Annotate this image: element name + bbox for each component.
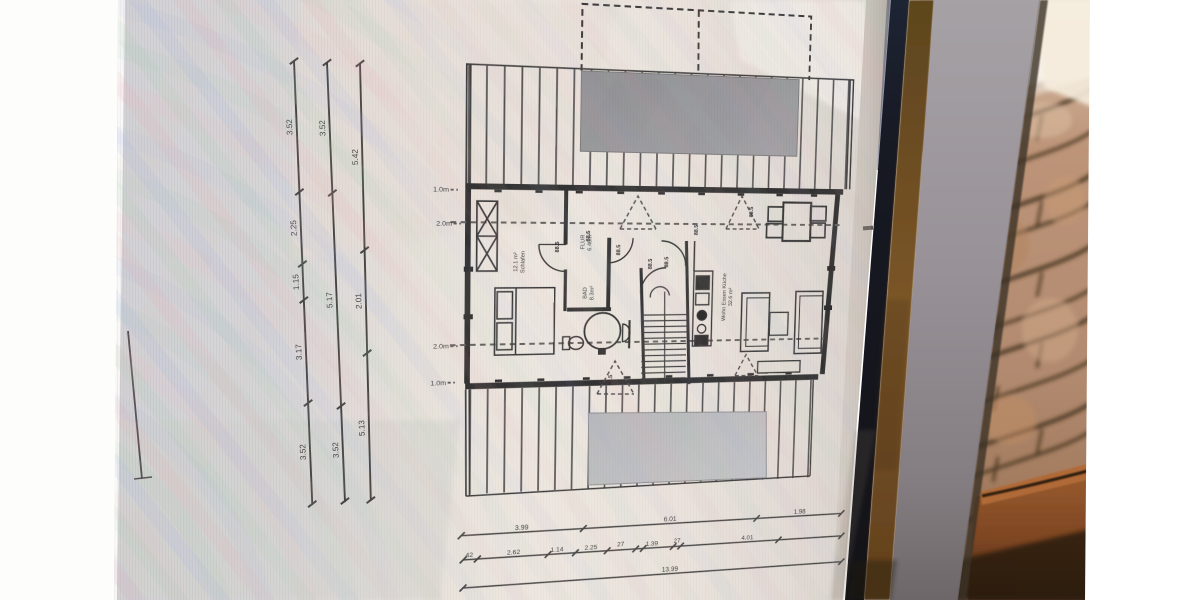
svg-text:3.99: 3.99 <box>515 523 529 532</box>
svg-text:1.0m: 1.0m <box>433 185 449 194</box>
svg-text:88.5: 88.5 <box>749 206 755 217</box>
svg-text:1.0m: 1.0m <box>430 379 446 388</box>
svg-text:2.0m: 2.0m <box>433 342 449 350</box>
svg-text:2.0m: 2.0m <box>436 219 452 227</box>
svg-text:6.01: 6.01 <box>664 515 677 523</box>
svg-text:88.5: 88.5 <box>648 258 654 269</box>
svg-text:27: 27 <box>617 540 624 548</box>
svg-text:5.17: 5.17 <box>325 292 335 309</box>
svg-text:1.15: 1.15 <box>291 274 301 291</box>
svg-text:88.5: 88.5 <box>608 374 614 385</box>
svg-text:32.6 m²: 32.6 m² <box>728 288 734 307</box>
svg-text:88.5: 88.5 <box>696 277 702 288</box>
svg-text:3.52: 3.52 <box>285 119 295 136</box>
svg-text:5.42: 5.42 <box>351 149 360 166</box>
svg-text:3.17: 3.17 <box>294 344 304 361</box>
svg-text:2.25: 2.25 <box>585 543 598 551</box>
svg-text:88.5: 88.5 <box>616 244 622 255</box>
svg-text:1.14: 1.14 <box>550 545 563 554</box>
svg-text:13.99: 13.99 <box>662 565 678 574</box>
svg-text:27: 27 <box>673 537 680 545</box>
svg-text:88.5: 88.5 <box>554 241 560 252</box>
svg-text:4.01: 4.01 <box>741 533 753 541</box>
svg-text:88.5: 88.5 <box>465 346 472 358</box>
svg-text:BAD: BAD <box>582 287 588 299</box>
svg-text:12.1 m²: 12.1 m² <box>513 252 520 271</box>
svg-text:3.52: 3.52 <box>298 444 308 461</box>
svg-text:Schlafen: Schlafen <box>520 250 527 273</box>
svg-text:88.5: 88.5 <box>694 224 700 235</box>
svg-text:88.5: 88.5 <box>664 256 670 267</box>
svg-text:1.39: 1.39 <box>646 539 659 547</box>
svg-text:3.52: 3.52 <box>318 120 328 137</box>
svg-text:5.13: 5.13 <box>357 420 366 437</box>
svg-text:2.62: 2.62 <box>507 548 520 557</box>
svg-text:2.01: 2.01 <box>354 293 363 310</box>
svg-text:3.52: 3.52 <box>331 442 341 459</box>
svg-text:8.3m²: 8.3m² <box>589 286 595 300</box>
svg-text:Wohn Essen Küche: Wohn Essen Küche <box>721 273 728 321</box>
svg-text:42: 42 <box>465 551 473 559</box>
svg-text:88.5: 88.5 <box>585 230 591 241</box>
svg-text:1.98: 1.98 <box>794 508 806 516</box>
svg-text:2.25: 2.25 <box>289 220 299 237</box>
